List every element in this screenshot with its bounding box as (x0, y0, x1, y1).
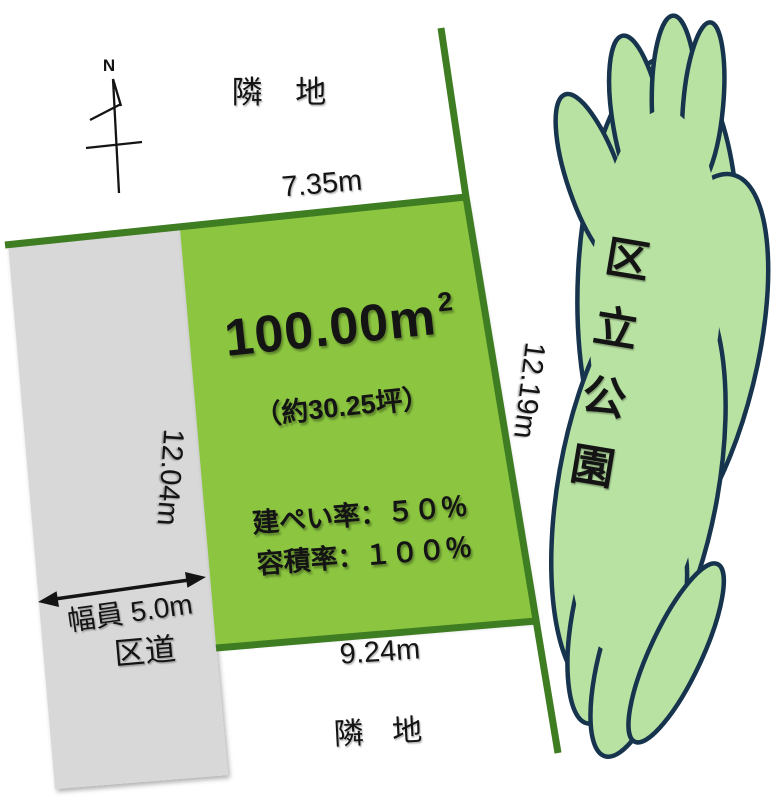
land-area-unit-exponent: 2 (436, 286, 455, 319)
land-plot-diagram: N 隣 地 7.35m 12.19m 12.04m 9.24m 100.00m2… (0, 0, 777, 805)
park-name-char: 区 (582, 219, 672, 301)
park-name-char: 立 (570, 288, 660, 370)
north-compass-icon (86, 79, 142, 193)
neighbor-label-top: 隣 地 (210, 75, 360, 111)
land-area-unit: m (386, 288, 439, 351)
north-label: N (94, 56, 124, 76)
park-name-char: 公 (559, 357, 649, 439)
park-name-char: 園 (547, 427, 637, 509)
